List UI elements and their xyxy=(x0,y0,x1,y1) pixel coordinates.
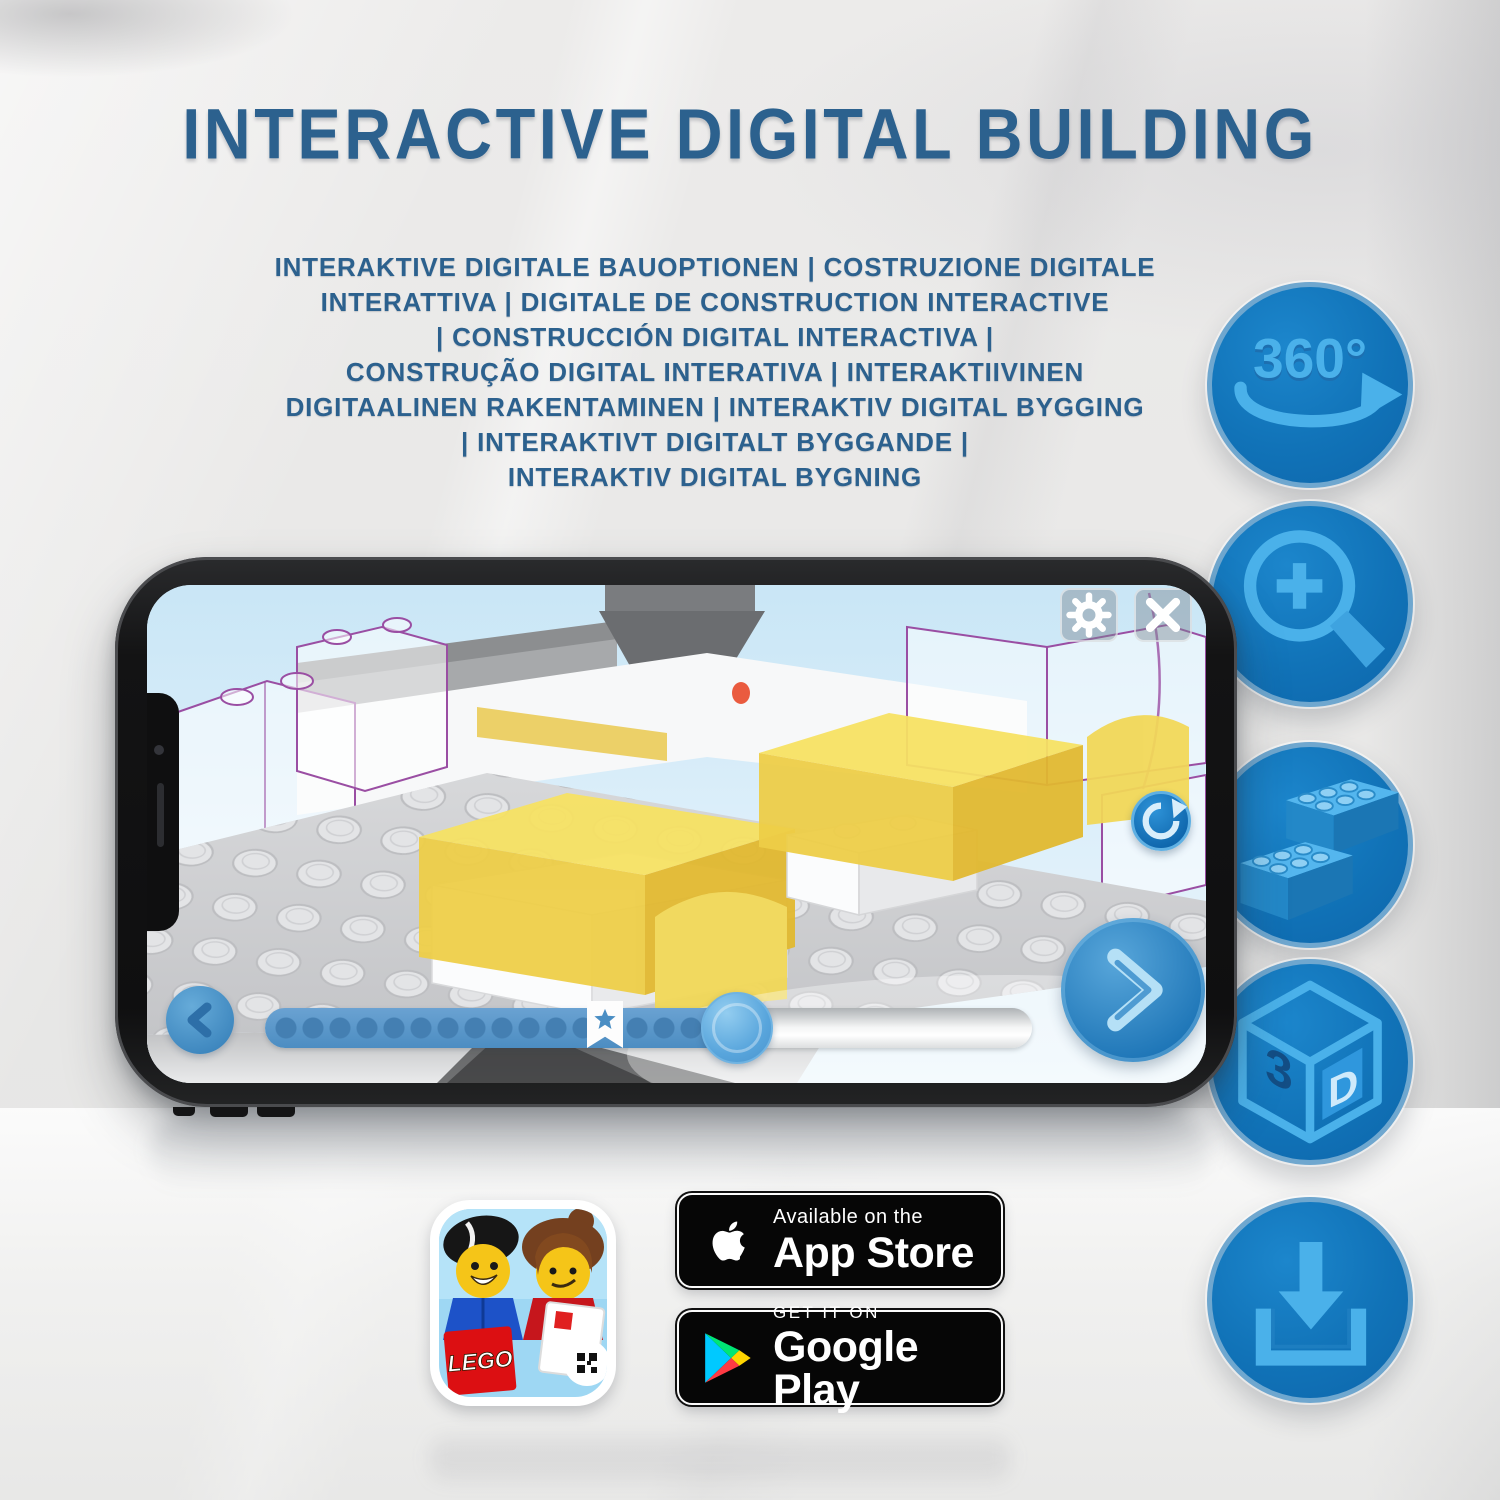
google-play-name: Google Play xyxy=(773,1326,1001,1412)
svg-text:3: 3 xyxy=(1265,1036,1293,1104)
gear-icon xyxy=(1062,590,1116,640)
multilanguage-subtitle: INTERAKTIVE DIGITALE BAUOPTIONEN | COSTR… xyxy=(185,250,1245,495)
lego-app-art: LEGO xyxy=(439,1209,607,1397)
subtitle-line: CONSTRUÇÃO DIGITAL INTERATIVA | INTERAKT… xyxy=(185,355,1245,390)
back-brick xyxy=(1286,779,1398,853)
app-store-tagline: Available on the xyxy=(773,1207,974,1227)
phone-volume-button xyxy=(257,1107,295,1117)
chevron-left-icon xyxy=(166,986,234,1054)
phone-reflection xyxy=(150,1112,1210,1190)
lego-logo: LEGO xyxy=(443,1326,516,1396)
close-button[interactable] xyxy=(1134,588,1192,642)
phone-side-button xyxy=(173,1107,195,1116)
chevron-right-icon xyxy=(1061,918,1205,1062)
build-progress-slider[interactable] xyxy=(265,1008,1032,1048)
badges-reflection xyxy=(430,1438,1010,1480)
speaker-slot xyxy=(157,783,164,847)
3d-cube-icon: 3 D xyxy=(1207,959,1413,1165)
subtitle-line: INTERAKTIV DIGITAL BYGNING xyxy=(185,460,1245,495)
phone-screen xyxy=(147,585,1206,1083)
subtitle-line: INTERAKTIVE DIGITALE BAUOPTIONEN | COSTR… xyxy=(185,250,1245,285)
phone-notch xyxy=(147,693,179,931)
slider-thumb[interactable] xyxy=(701,992,773,1064)
app-store-badge[interactable]: Available on the App Store xyxy=(677,1193,1003,1288)
app-store-name: App Store xyxy=(773,1232,974,1275)
previous-step-button[interactable] xyxy=(166,986,234,1054)
google-play-badge[interactable]: GET IT ON Google Play xyxy=(677,1310,1003,1405)
close-icon xyxy=(1136,590,1190,640)
page-title: INTERACTIVE DIGITAL BUILDING xyxy=(0,92,1500,175)
smartphone xyxy=(115,557,1237,1107)
subtitle-line: DIGITAALINEN RAKENTAMINEN | INTERAKTIV D… xyxy=(185,390,1245,425)
google-play-tagline: GET IT ON xyxy=(773,1304,1001,1321)
download-icon xyxy=(1207,1197,1413,1403)
star-icon xyxy=(593,1007,617,1031)
subtitle-line: INTERATTIVA | DIGITALE DE CONSTRUCTION I… xyxy=(185,285,1245,320)
google-play-icon xyxy=(703,1330,755,1386)
camera-icon xyxy=(154,745,164,755)
apple-icon xyxy=(703,1211,755,1271)
progress-fill xyxy=(265,1008,747,1048)
phone-volume-button xyxy=(210,1107,248,1117)
svg-text:360°: 360° xyxy=(1253,327,1367,389)
rotate-arrow-icon xyxy=(1134,794,1188,848)
subtitle-line: | INTERAKTIVT DIGITALT BYGGANDE | xyxy=(185,425,1245,460)
360-rotation-icon: ​ 360° xyxy=(1207,282,1413,488)
settings-button[interactable] xyxy=(1060,588,1118,642)
next-step-button[interactable] xyxy=(1061,918,1205,1062)
subtitle-line: | CONSTRUCCIÓN DIGITAL INTERACTIVA | xyxy=(185,320,1245,355)
front-brick xyxy=(1241,842,1353,920)
zoom-in-icon xyxy=(1207,501,1413,707)
brick-icon xyxy=(1207,742,1413,948)
lego-app-icon[interactable]: LEGO xyxy=(430,1200,616,1406)
rotate-model-button[interactable] xyxy=(1131,791,1191,851)
